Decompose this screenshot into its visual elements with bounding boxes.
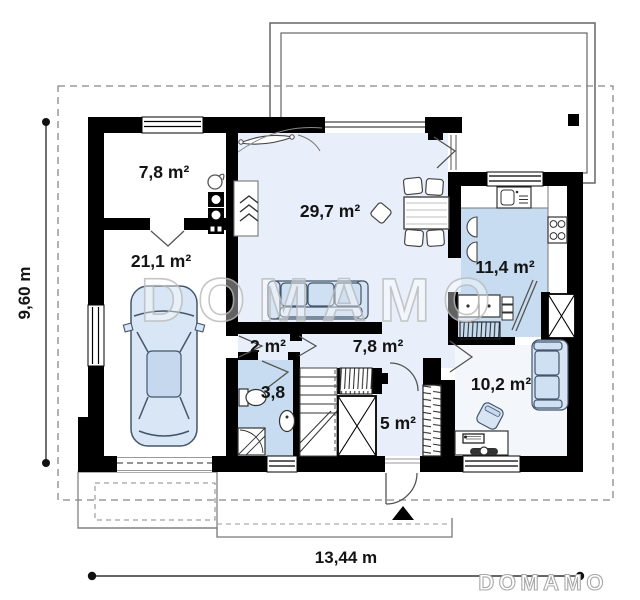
shelf-stack [502,297,513,320]
kitchen-sink [497,187,531,208]
room-label-office: 10,2 m² [471,374,531,394]
dimension-left: 9,60 m [15,118,50,467]
window-bathroom-bottom [267,456,297,472]
window-boiler-top [142,117,203,133]
room-label-living-room: 29,7 m² [300,201,360,221]
washbasin [280,411,295,432]
dining-table [404,197,449,229]
entrance-arrow [392,506,414,520]
desk-chair [470,447,498,455]
stove [548,217,567,243]
room-label-hall: 7,8 m² [353,336,404,356]
window-office-bottom [463,456,520,472]
shower [238,428,265,455]
room-label-corridor: 2 m² [250,336,286,356]
garage-door-opening [117,456,212,472]
fireplace [234,181,258,236]
watermark-text: DOMAMO [141,266,504,334]
dimension-height-label: 9,60 m [15,267,34,320]
room-label-vestibule: 5 m² [380,413,416,433]
floor-plan-page: 7,8 m² 21,1 m² 29,7 m² 11,4 m² 2 m² 7,8 … [0,0,640,600]
wardrobe-x-stairs [338,396,376,456]
coat-rack [340,368,372,394]
stairs [300,368,337,456]
window-kitchen-top [487,172,543,186]
driveway-apron [78,472,452,537]
room-label-bathroom: 3,8 [261,382,286,402]
floor-plan-canvas: 7,8 m² 21,1 m² 29,7 m² 11,4 m² 2 m² 7,8 … [0,0,640,600]
boiler-stack [208,174,224,234]
entry-door-opening [385,456,420,472]
dimension-width-label: 13,44 m [315,548,377,567]
logo-text: DOMAMO [478,570,608,595]
wardrobe-x-small [548,294,575,338]
tall-wardrobe [423,385,441,456]
room-label-boiler-room: 7,8 m² [139,162,190,182]
office-sofa [532,340,568,410]
window-garage-left [88,305,104,366]
